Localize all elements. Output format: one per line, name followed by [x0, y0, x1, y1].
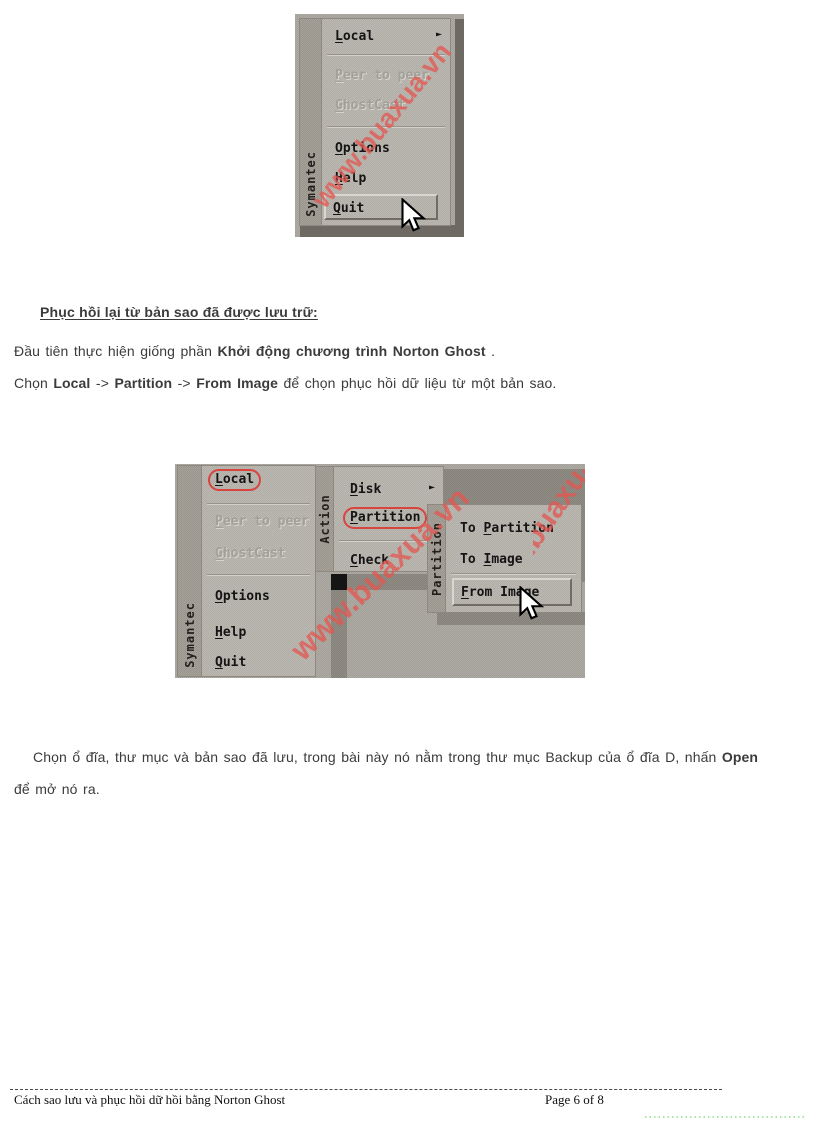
- ghost-main-menu: Local►Peer to peerGhostCastOptionsHelpQu…: [322, 19, 450, 225]
- menu-label: Options: [328, 138, 397, 160]
- text-segment: Đầu tiên thực hiện giống phần: [14, 343, 218, 359]
- footer-page-number: Page 6 of 8: [545, 1092, 604, 1108]
- text-segment: ->: [172, 375, 196, 391]
- menu-label: Check: [343, 550, 396, 572]
- menu-label: Disk: [343, 479, 388, 501]
- text-segment: để mở nó ra.: [14, 781, 100, 797]
- menu-item-peer-to-peer[interactable]: Peer to peer: [328, 65, 446, 85]
- menu-item-options[interactable]: Options: [208, 586, 311, 606]
- text-segment: Chọn ổ đĩa, thư mục và bản sao đã lưu, t…: [33, 749, 722, 765]
- menu-label: Help: [208, 622, 253, 644]
- menu-separator: [327, 126, 445, 128]
- paragraph-start-ghost: Đầu tiên thực hiện giống phần Khởi động …: [14, 343, 495, 359]
- menu-label: GhostCast: [208, 543, 292, 565]
- submenu-arrow-icon: ►: [429, 482, 435, 493]
- menu-item-ghostcast[interactable]: GhostCast: [208, 543, 311, 563]
- text-segment: để chọn phục hồi dữ liệu từ một bản sao.: [278, 375, 556, 391]
- screenshot-shadow-right: [455, 19, 464, 237]
- mouse-cursor-icon: [401, 198, 431, 234]
- menu-item-help[interactable]: Help: [208, 622, 311, 642]
- menu-label: Help: [328, 168, 373, 190]
- submenu-arrow-icon: ►: [436, 29, 442, 40]
- screenshot-ghost-submenus: Symantec LocalPeer to peerGhostCastOptio…: [175, 464, 585, 678]
- ghost-main-menu: LocalPeer to peerGhostCastOptionsHelpQui…: [202, 466, 315, 676]
- menu-item-check[interactable]: Check: [343, 550, 439, 570]
- menu-item-partition[interactable]: Partition: [343, 507, 439, 527]
- symantec-brand-label: Symantec: [304, 151, 318, 217]
- paragraph-menu-path: Chọn Local -> Partition -> From Image để…: [14, 375, 556, 391]
- screenshot-ghost-main-menu: Symantec Local►Peer to peerGhostCastOpti…: [295, 14, 464, 237]
- text-segment: From Image: [196, 375, 278, 391]
- menu-item-help[interactable]: Help: [328, 168, 446, 188]
- menu-item-ghostcast[interactable]: GhostCast: [328, 95, 446, 115]
- symantec-sidebar: Symantec: [178, 466, 202, 676]
- submenu-shadow: [437, 612, 585, 625]
- menu-separator: [327, 54, 445, 56]
- menu-item-from-image[interactable]: From Image: [452, 578, 572, 606]
- menu-shadow-vertical: [331, 590, 347, 678]
- symantec-brand-label: Symantec: [183, 602, 197, 668]
- menu-item-options[interactable]: Options: [328, 138, 446, 158]
- watermark-fragment: www.buaxua.vn: [533, 469, 585, 573]
- highlighted-menu-label: Local: [208, 469, 261, 491]
- section-heading: Phục hồi lại từ bản sao đã được lưu trữ:: [40, 304, 318, 320]
- text-segment: .: [486, 343, 495, 359]
- action-menu-label: Action: [318, 494, 332, 543]
- partition-menu-label: Partition: [430, 521, 444, 595]
- action-menu-sidebar: Action: [316, 467, 334, 571]
- text-segment: ->: [90, 375, 114, 391]
- ghost-action-submenu: Disk►PartitionCheck: [334, 467, 443, 571]
- menu-item-disk[interactable]: Disk►: [343, 479, 439, 499]
- menu-separator: [451, 573, 576, 575]
- menu-item-peer-to-peer[interactable]: Peer to peer: [208, 511, 311, 531]
- menu-label: Quit: [208, 652, 253, 674]
- symantec-sidebar: Symantec: [300, 19, 322, 225]
- footer-green-dots: [645, 1116, 805, 1118]
- menu-separator: [207, 503, 310, 505]
- menu-item-local[interactable]: Local: [208, 469, 311, 489]
- footer-doc-title: Cách sao lưu và phục hồi dữ hồi bằng Nor…: [14, 1092, 285, 1108]
- watermark-text: www.buaxua.vn: [533, 469, 585, 573]
- partition-menu-sidebar: Partition: [428, 505, 446, 612]
- menu-label: To Image: [453, 549, 530, 571]
- menu-label: Peer to peer: [328, 65, 436, 87]
- text-segment: Chọn: [14, 375, 53, 391]
- menu-separator: [207, 574, 310, 576]
- menu-item-local[interactable]: Local►: [328, 26, 446, 46]
- menu-label: GhostCast: [328, 95, 412, 117]
- menu-label: Quit: [326, 198, 371, 220]
- menu-separator: [339, 540, 438, 542]
- mouse-cursor-icon: [519, 586, 549, 622]
- menu-item-quit[interactable]: Quit: [208, 652, 311, 672]
- menu-label: Options: [208, 586, 277, 608]
- text-segment: Khởi động chương trình Norton Ghost: [218, 343, 486, 359]
- text-segment: Open: [722, 749, 758, 765]
- footer-divider: [10, 1089, 722, 1090]
- text-segment: Local: [53, 375, 90, 391]
- screenshot-shadow-bottom: [300, 225, 464, 237]
- menu-label: Peer to peer: [208, 511, 316, 533]
- paragraph-open-backup: Chọn ổ đĩa, thư mục và bản sao đã lưu, t…: [14, 741, 762, 805]
- menu-label: Local: [328, 26, 381, 48]
- menu-shadow-corner: [331, 574, 347, 590]
- highlighted-menu-label: Partition: [343, 507, 427, 529]
- text-segment: Partition: [114, 375, 172, 391]
